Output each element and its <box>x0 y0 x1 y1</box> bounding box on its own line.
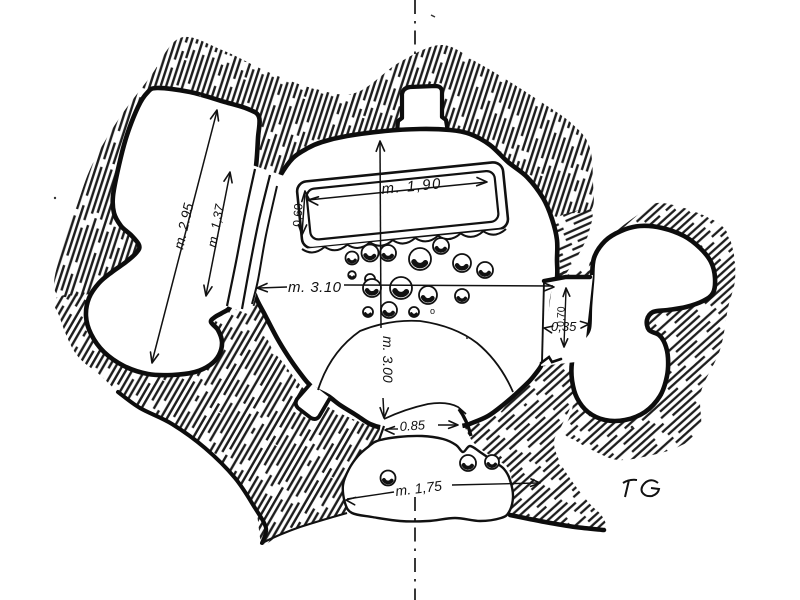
svg-text:0,35: 0,35 <box>551 319 577 334</box>
svg-text:o: o <box>430 306 435 316</box>
svg-text:m. 3.10: m. 3.10 <box>288 279 342 296</box>
svg-text:m. 3.00: m. 3.00 <box>380 336 396 383</box>
svg-text:0.85: 0.85 <box>399 417 426 434</box>
svg-text:0,60: 0,60 <box>290 203 306 228</box>
